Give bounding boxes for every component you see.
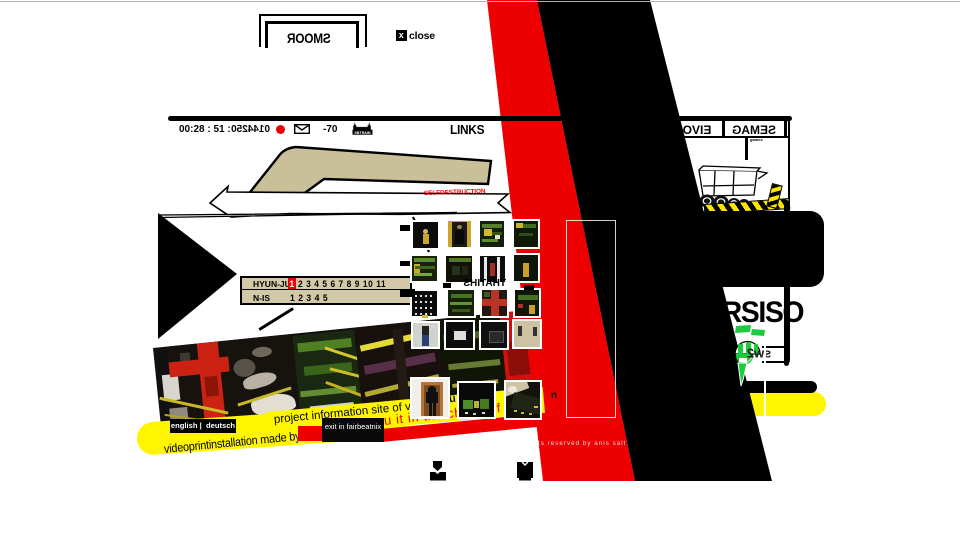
svg-text:SBTRAIN: SBTRAIN (355, 131, 371, 135)
svg-text:sw2: sw2 (747, 346, 772, 361)
